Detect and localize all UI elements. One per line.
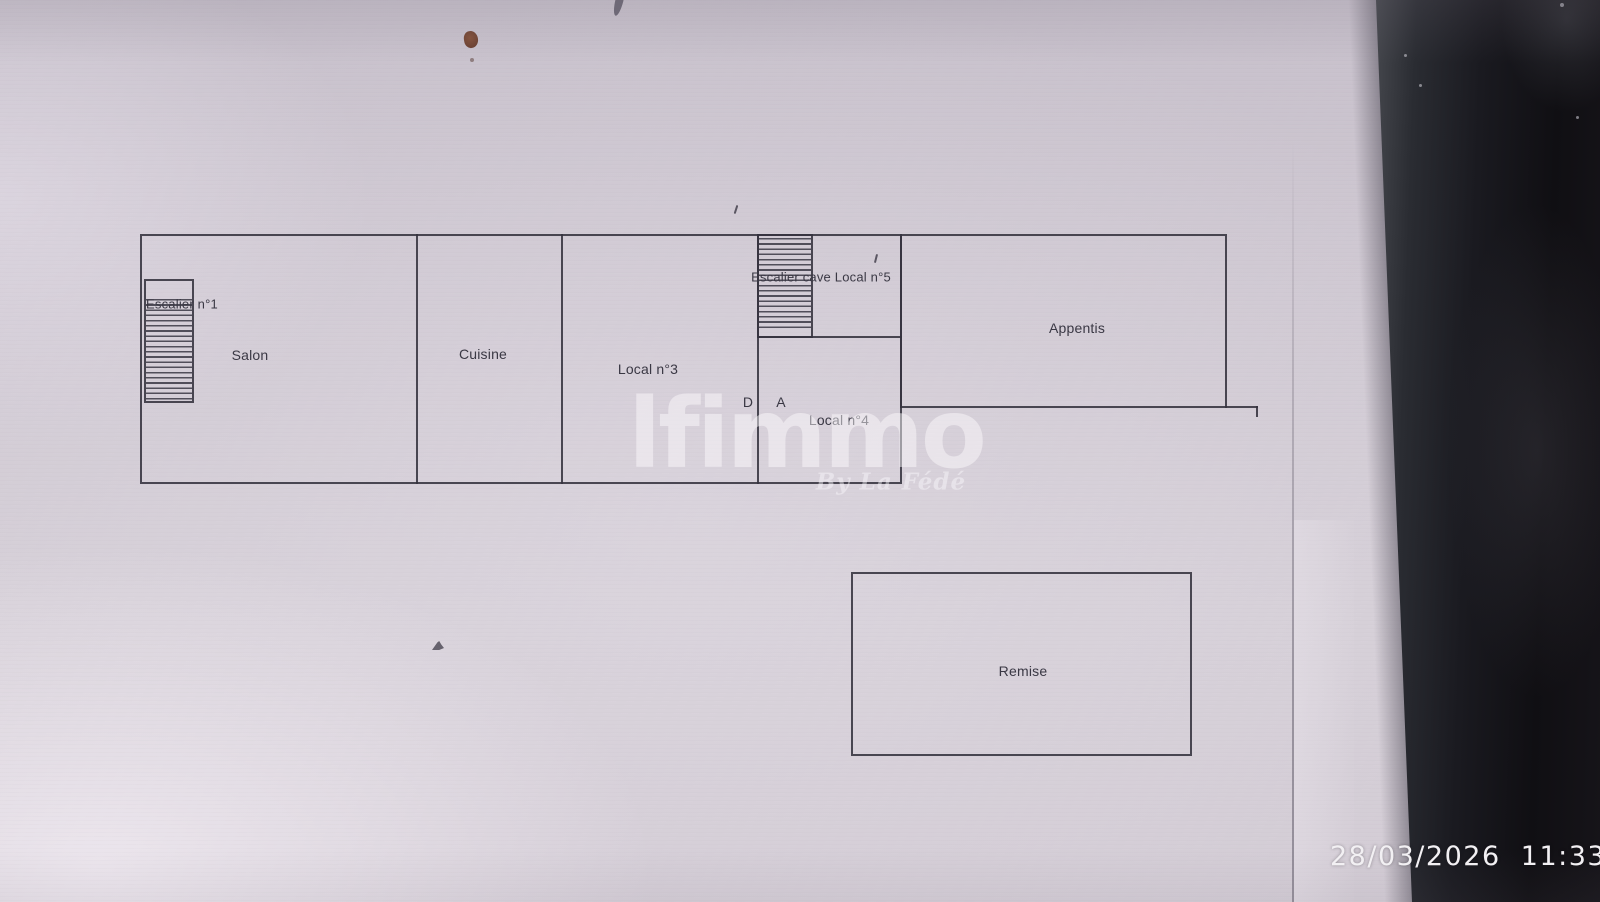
wall-divider-salon-cuisine	[416, 234, 418, 484]
page-edge-line	[1292, 140, 1294, 902]
photo-of-screen: Salon Cuisine Local n°3 Escalier n°1 Esc…	[0, 0, 1600, 902]
staircase-escalier-cave	[757, 234, 813, 338]
dust-speck	[1560, 3, 1564, 7]
brown-dot	[470, 58, 474, 62]
camera-timestamp: 28/03/2026 11:33	[1330, 841, 1600, 872]
dust-speck	[1419, 84, 1422, 87]
room-label-local3: Local n°3	[618, 361, 678, 377]
room-label-salon: Salon	[232, 347, 269, 363]
room-label-escalier-n1: Escalier n°1	[146, 297, 218, 312]
dust-speck	[1404, 54, 1407, 57]
wall-appentis-extension	[1225, 406, 1258, 408]
room-label-cuisine: Cuisine	[459, 346, 507, 362]
screen-bezel-dark-area	[1376, 0, 1600, 902]
watermark-byline: By La Fédé	[816, 469, 966, 496]
room-label-remise: Remise	[999, 663, 1048, 679]
room-label-escalier-cave-local5: Escalier cave Local n°5	[751, 270, 891, 285]
stair-hatching	[146, 299, 192, 401]
room-label-appentis: Appentis	[1049, 320, 1105, 336]
wall-divider-cuisine-local3	[561, 234, 563, 484]
dust-speck	[1576, 116, 1579, 119]
wall-appentis-stub	[1256, 406, 1258, 417]
